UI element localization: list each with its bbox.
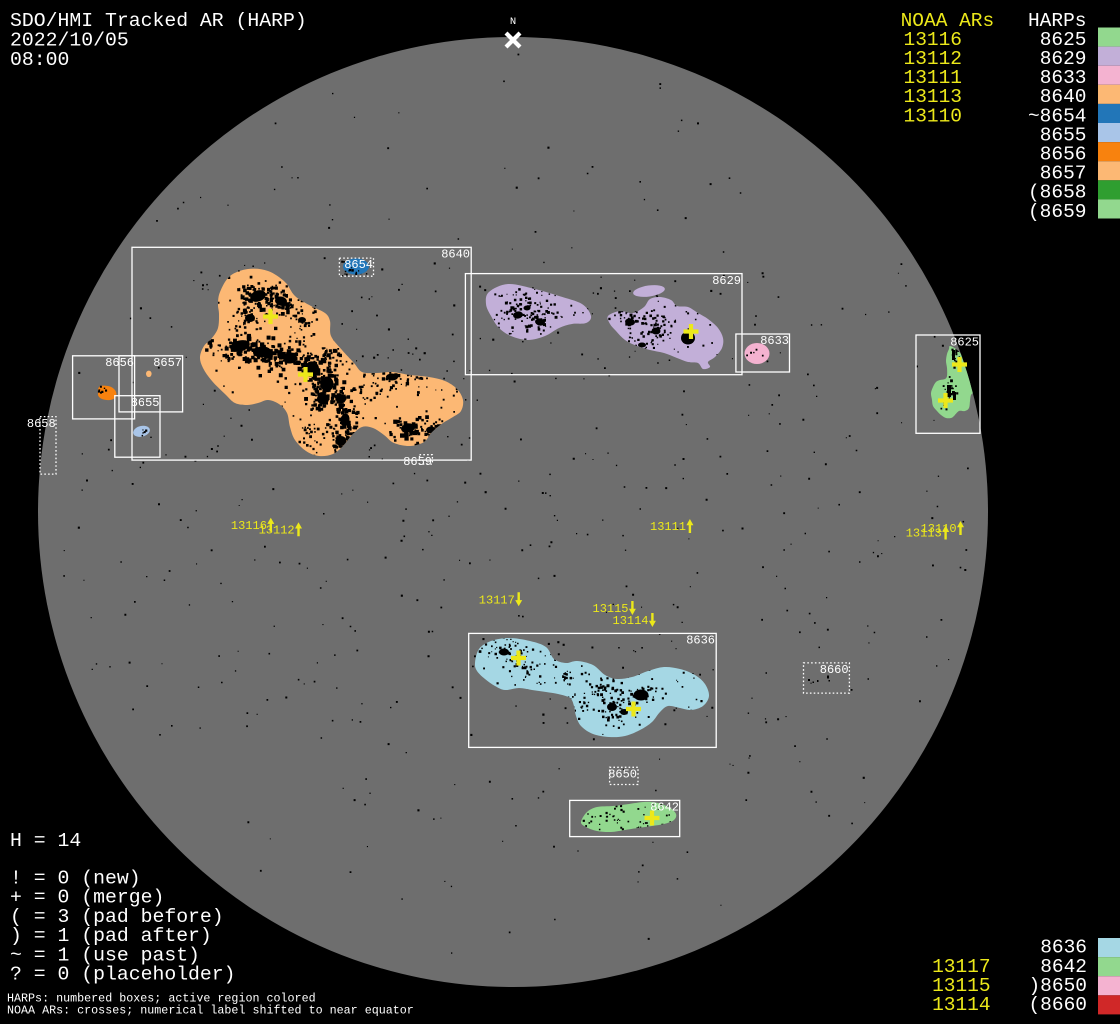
svg-text:NOAA ARs: crosses; numerical l: NOAA ARs: crosses; numerical label shift…: [7, 1004, 414, 1018]
svg-text:H = 14: H = 14: [10, 830, 81, 852]
svg-text:8654: 8654: [344, 258, 373, 272]
svg-text:8660: 8660: [820, 663, 849, 677]
svg-text:13114: 13114: [613, 614, 649, 628]
svg-text:8629: 8629: [712, 274, 741, 288]
svg-text:8659: 8659: [403, 455, 432, 469]
svg-text:13110: 13110: [904, 105, 963, 127]
svg-text:(8660: (8660: [1028, 994, 1087, 1016]
svg-text:13112: 13112: [259, 523, 295, 537]
svg-text:8636: 8636: [686, 634, 715, 648]
svg-text:? = 0 (placeholder): ? = 0 (placeholder): [10, 964, 236, 986]
svg-text:8642: 8642: [650, 800, 679, 814]
svg-text:8633: 8633: [760, 334, 789, 348]
svg-text:8650: 8650: [608, 767, 637, 781]
svg-text:8658: 8658: [27, 417, 56, 431]
svg-text:N: N: [510, 16, 516, 28]
svg-text:8625: 8625: [950, 335, 979, 349]
svg-text:(8659: (8659: [1028, 201, 1087, 223]
svg-text:13114: 13114: [932, 994, 991, 1016]
svg-text:08:00: 08:00: [10, 49, 69, 71]
svg-text:8657: 8657: [153, 356, 182, 370]
svg-text:8640: 8640: [441, 247, 470, 261]
svg-text:13117: 13117: [479, 593, 515, 607]
svg-text:13111: 13111: [650, 520, 686, 534]
svg-text:13113: 13113: [906, 527, 942, 541]
